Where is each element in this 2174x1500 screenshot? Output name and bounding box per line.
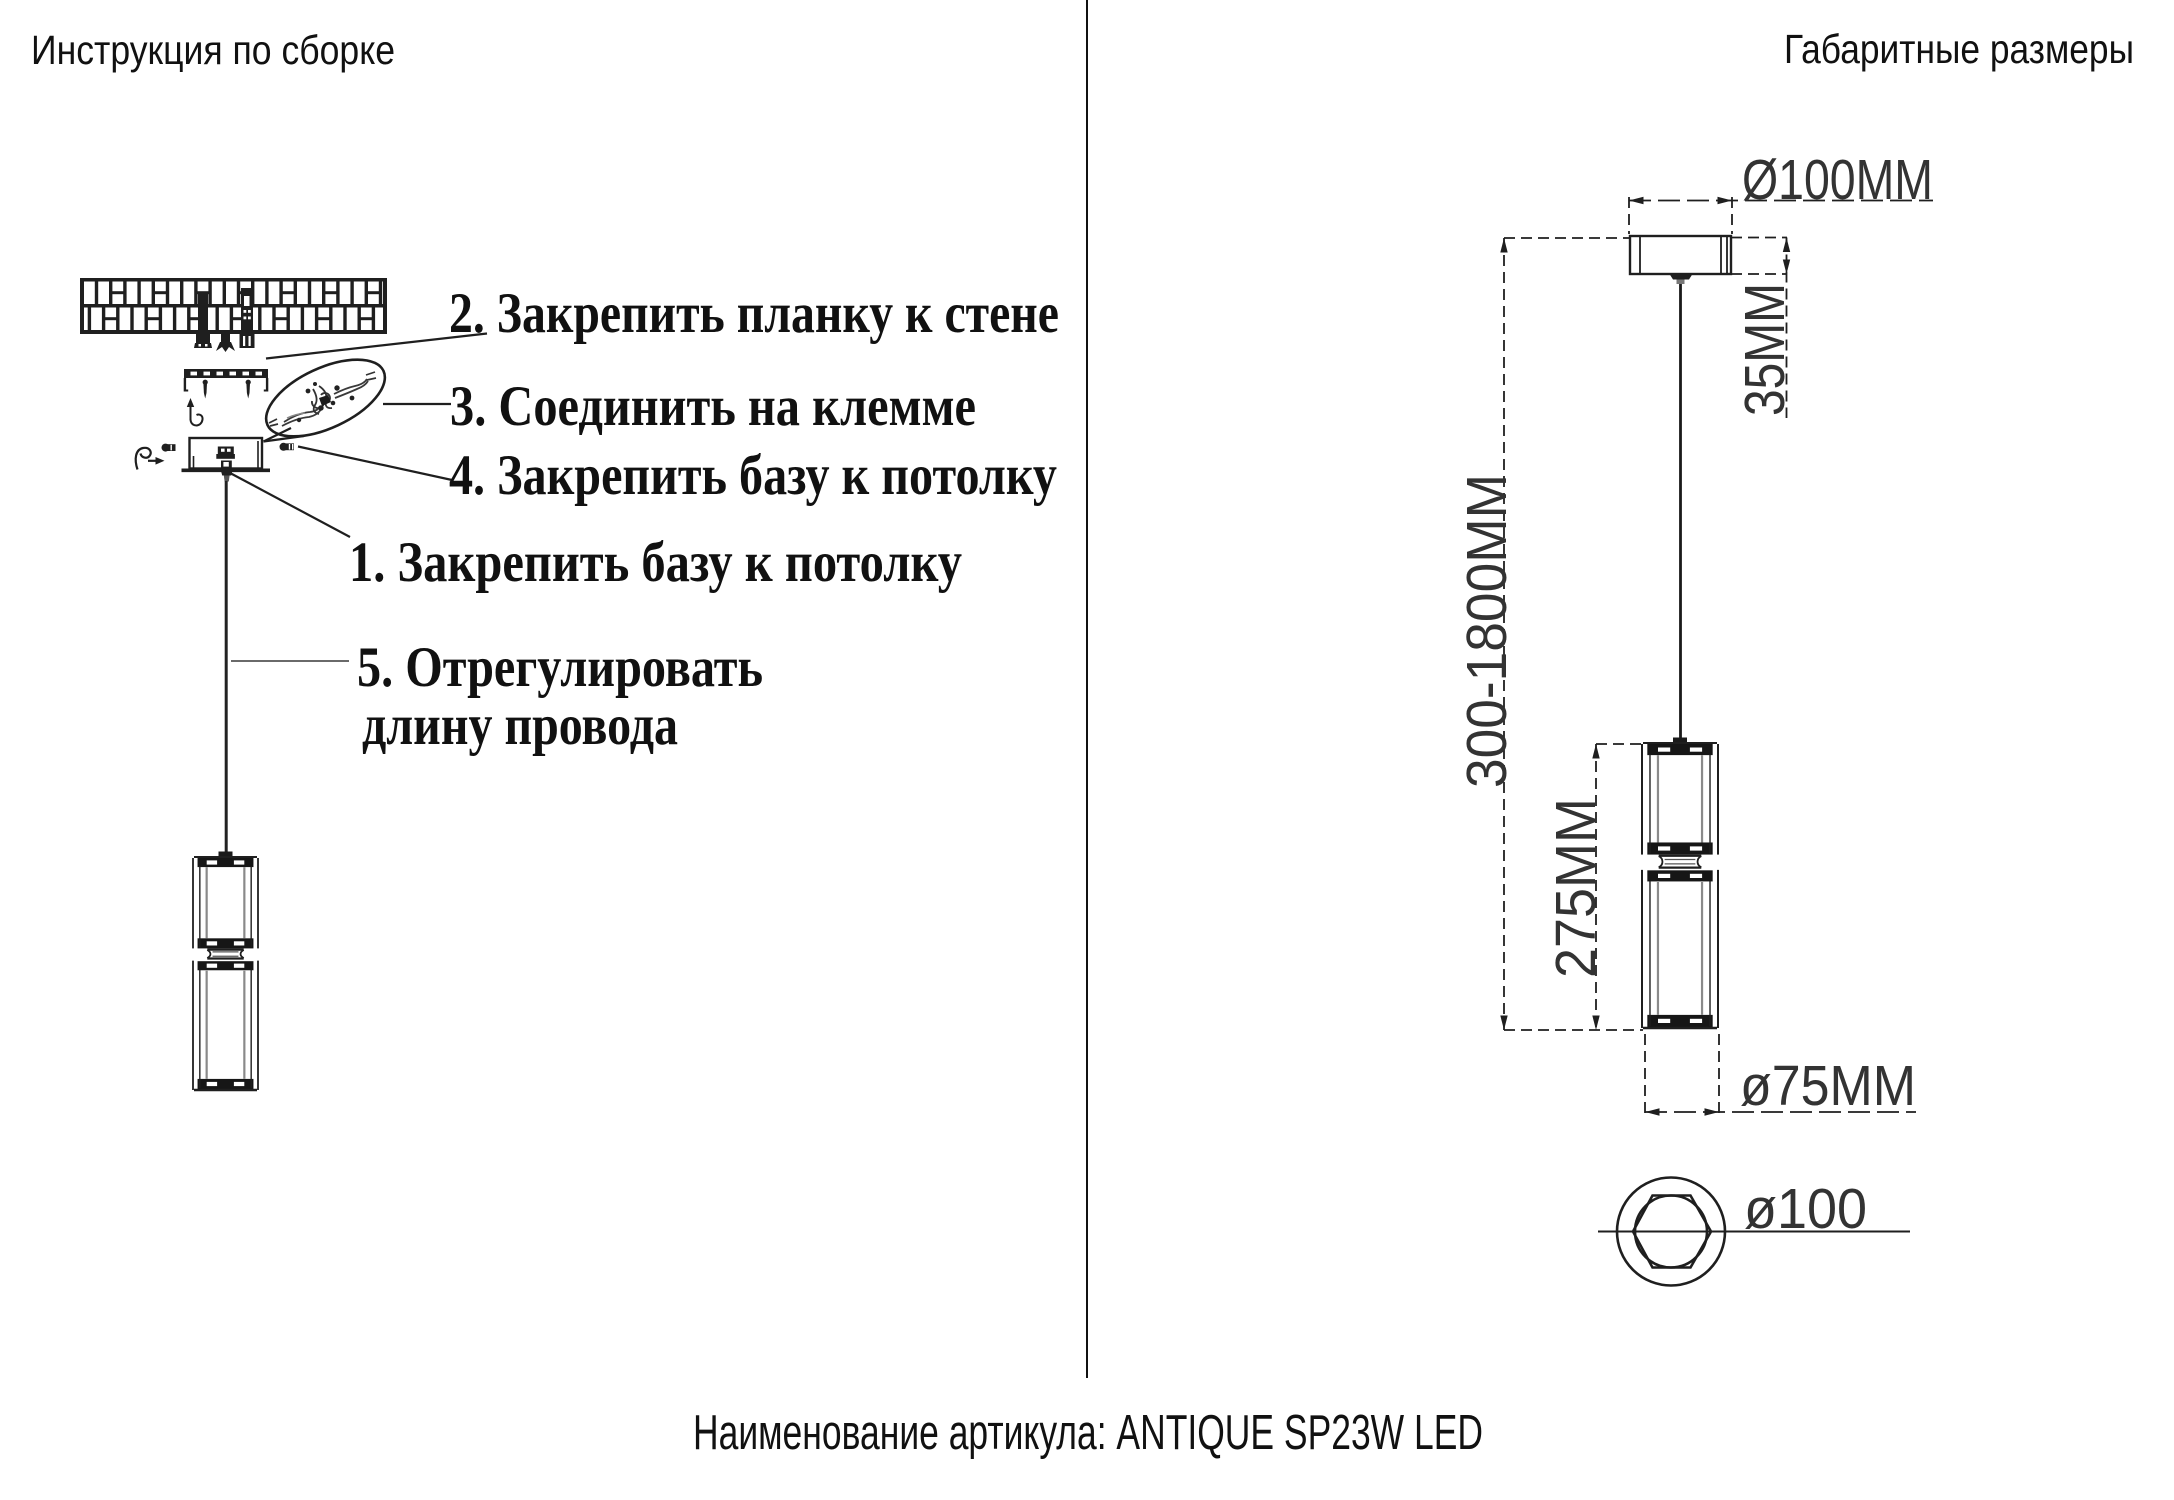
- svg-text:1. Закрепить базу к потолку: 1. Закрепить базу к потолку: [349, 531, 962, 594]
- svg-text:Ø100MM: Ø100MM: [1742, 148, 1933, 212]
- svg-text:5. Отрегулировать: 5. Отрегулировать: [357, 636, 763, 699]
- svg-text:275MM: 275MM: [1544, 798, 1608, 978]
- svg-text:300-1800MM: 300-1800MM: [1455, 474, 1519, 788]
- svg-text:ø100: ø100: [1744, 1177, 1867, 1241]
- svg-text:35MM: 35MM: [1733, 283, 1797, 416]
- svg-text:3. Соединить на клемме: 3. Соединить на клемме: [450, 375, 976, 438]
- svg-text:ø75MM: ø75MM: [1740, 1054, 1916, 1118]
- svg-text:Габаритные размеры: Габаритные размеры: [1784, 26, 2134, 72]
- svg-text:2. Закрепить планку к стене: 2. Закрепить планку к стене: [449, 282, 1059, 345]
- svg-text:4. Закрепить базу к потолку: 4. Закрепить базу к потолку: [449, 444, 1057, 507]
- svg-text:длину провода: длину провода: [362, 694, 678, 757]
- svg-text:Инструкция по сборке: Инструкция по сборке: [31, 27, 395, 73]
- svg-text:Наименование артикула: ANTIQUE: Наименование артикула: ANTIQUE SP23W LED: [693, 1406, 1483, 1460]
